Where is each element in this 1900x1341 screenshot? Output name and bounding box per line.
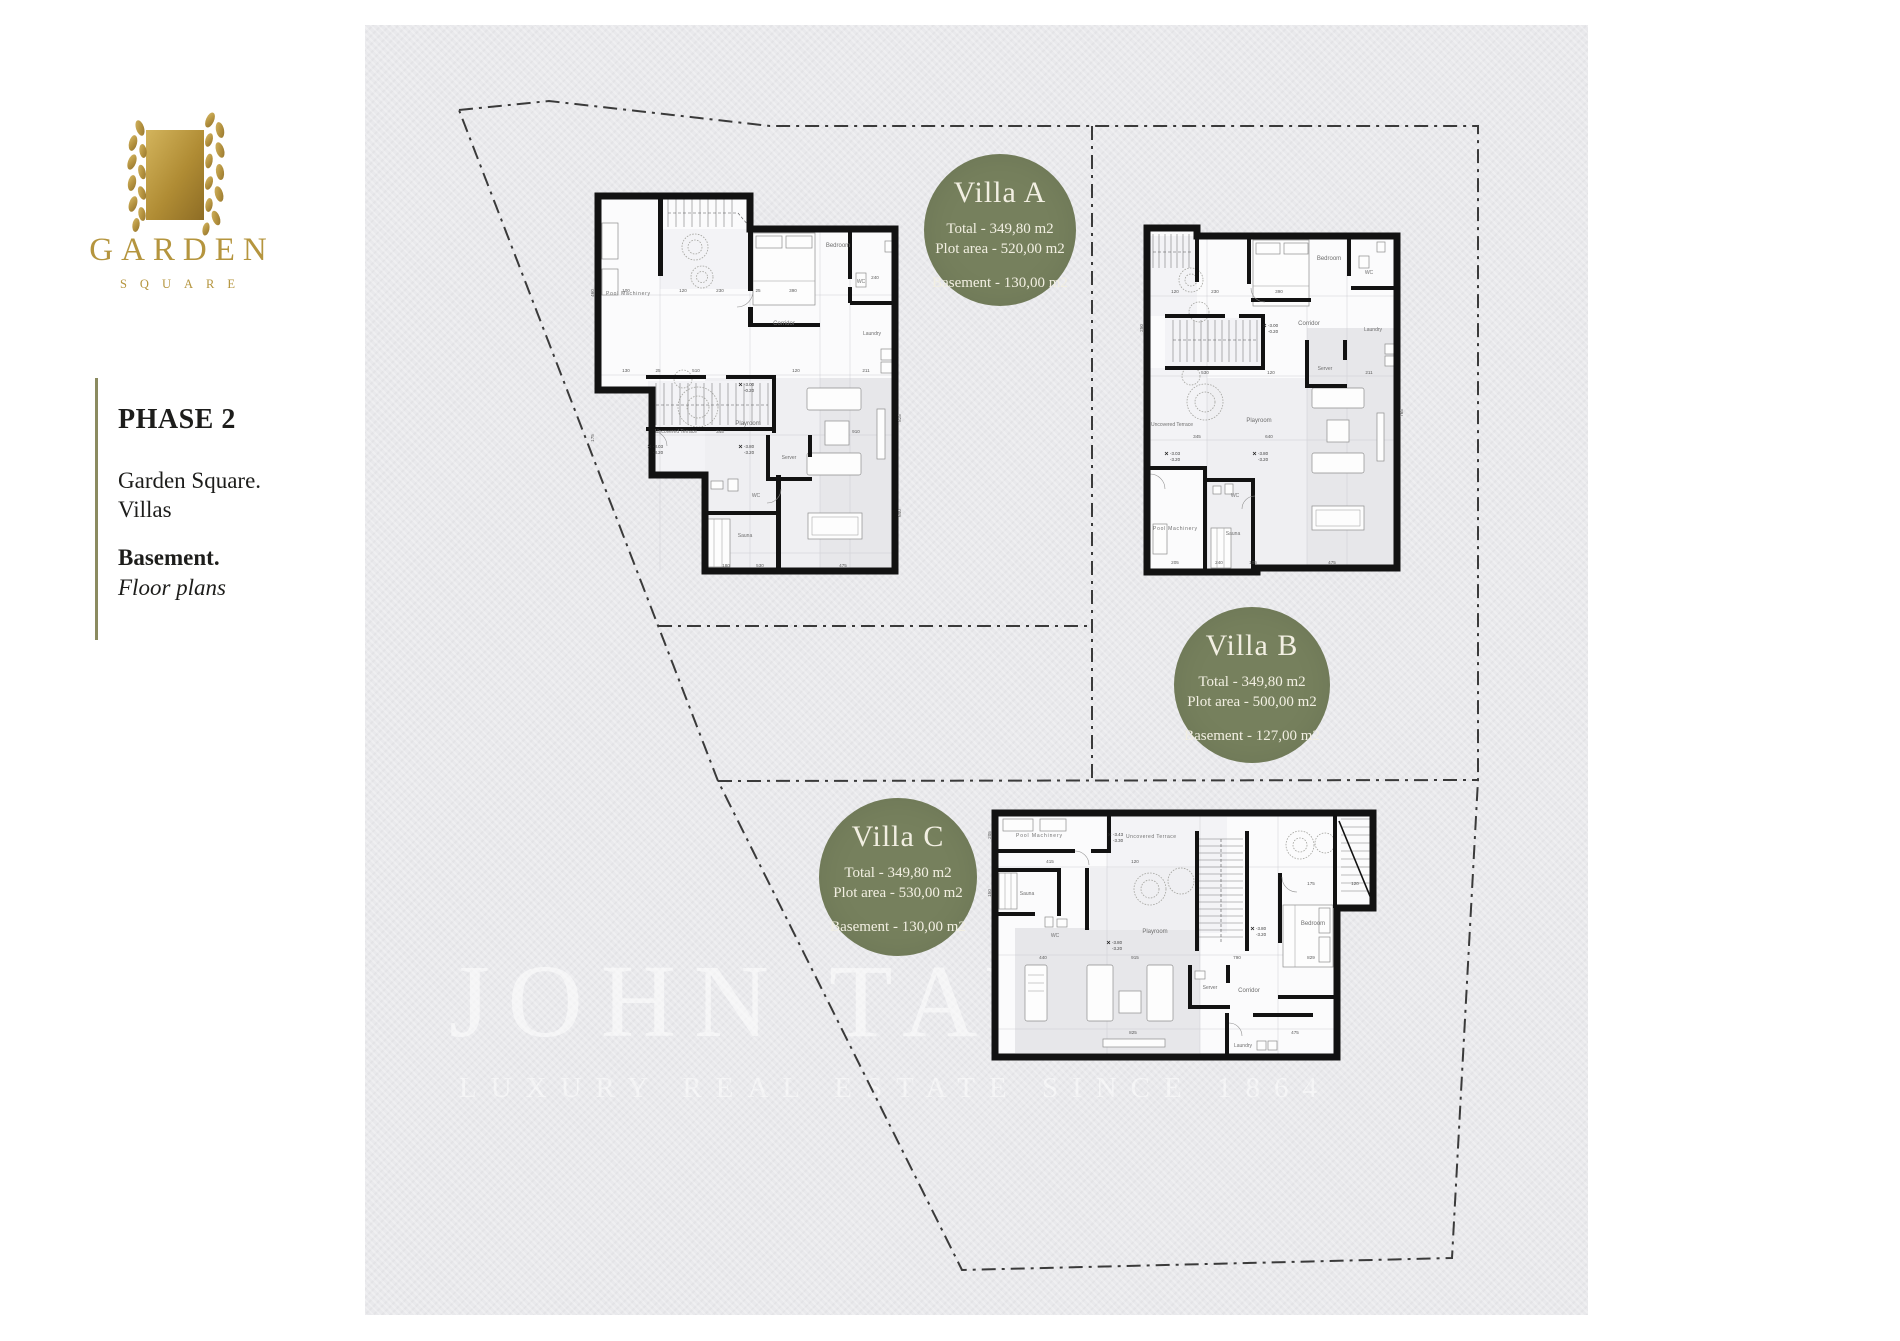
level-label: -3.20: [1112, 946, 1123, 951]
sauna-bench: [999, 873, 1017, 909]
room-label: Bedroom: [1301, 921, 1325, 927]
dimension-label: 120: [792, 368, 800, 373]
dimension-label: 205: [987, 831, 992, 839]
sauna-bench: [708, 519, 730, 567]
bed: [1253, 240, 1309, 306]
room-label: Playroom: [735, 421, 760, 427]
room-label: Pool Machinery: [1153, 526, 1198, 532]
level-label: -0.20: [1268, 329, 1279, 334]
dimension-label: 25: [755, 288, 761, 293]
level-label: -3.20: [744, 450, 755, 455]
villa-a-badge: Villa A Total - 349,80 m2 Plot area - 52…: [924, 154, 1076, 306]
room-label: Corridor: [1298, 321, 1320, 327]
dimension-label: 240: [871, 275, 879, 280]
room-label: Pool Machinery: [1016, 833, 1063, 839]
garden-square-logo: GARDEN SQUARE: [88, 88, 283, 303]
level-label: -3.30: [1113, 838, 1124, 843]
room-label: Server: [1318, 366, 1333, 372]
dimension-label: 825: [897, 414, 902, 422]
level-label: -3.80: [1256, 926, 1267, 931]
dimension-label: 910: [852, 429, 860, 434]
level-label: -3.03: [653, 444, 664, 449]
section-title: Basement.: [118, 545, 220, 571]
room-label: Laundry: [1364, 327, 1383, 333]
villa-c-total: Total - 349,80 m2: [819, 864, 977, 884]
section-subtitle: Floor plans: [118, 575, 226, 601]
project-name-line2: Villas: [118, 497, 172, 523]
room-label: Uncovered Terrace: [1151, 422, 1193, 428]
dimension-label: 120: [1351, 881, 1359, 886]
room-label: Server: [782, 455, 797, 461]
dimension-label: 120: [1171, 289, 1179, 294]
dimension-label: 640: [1265, 434, 1273, 439]
level-label: -3.00: [1268, 323, 1279, 328]
dimension-label: 100: [622, 288, 630, 293]
level-label: -0.20: [744, 388, 755, 393]
villa-c-plot-area: Plot area - 530,00 m2: [819, 884, 977, 904]
dimension-label: 25: [655, 368, 661, 373]
phase-title: PHASE 2: [118, 404, 236, 436]
dimension-label: 120: [1267, 370, 1275, 375]
dimension-label: 390: [1275, 289, 1283, 294]
dimension-label: 825: [1129, 1030, 1137, 1035]
villa-b-badge: Villa B Total - 349,80 m2 Plot area - 50…: [1174, 607, 1330, 763]
pool-table: [808, 513, 862, 539]
room-label: Corridor: [1238, 988, 1260, 994]
dimension-label: 105: [1249, 560, 1257, 565]
project-name: Garden Square.: [118, 468, 261, 494]
room-label: Bedroom: [1317, 256, 1341, 262]
room-label: Uncovered Terrace: [1126, 834, 1176, 840]
dimension-label: 510: [692, 368, 700, 373]
room-label: Sauna: [1020, 891, 1035, 897]
villa-b-badge-title: Villa B: [1174, 629, 1330, 663]
level-label: -3.00: [744, 382, 755, 387]
pool-table: [1312, 506, 1364, 530]
room-label: Playroom: [1246, 418, 1271, 424]
dimension-label: 440: [1039, 955, 1047, 960]
dimension-label: 475: [839, 563, 847, 568]
sidebar-accent-line: [95, 378, 98, 640]
room-label: WC: [752, 493, 761, 499]
level-label: -3.20: [653, 450, 664, 455]
villa-b-total: Total - 349,80 m2: [1174, 673, 1330, 693]
room-label: Corridor: [773, 321, 795, 327]
dimension-label: 175: [1307, 881, 1315, 886]
room-label: Playroom: [1142, 929, 1167, 935]
dimension-label: 211: [1365, 370, 1373, 375]
villa-c-floor-plan: Pool Machinery Uncovered Terrace Sauna W…: [985, 803, 1390, 1068]
dimension-label: 765: [1399, 409, 1404, 417]
level-label: -3.03: [1170, 451, 1181, 456]
level-label: -3.80: [1258, 451, 1269, 456]
level-label: -3.20: [1258, 457, 1269, 462]
villa-a-floor-plan: Pool Machinery Bedroom WC Corridor Laund…: [588, 173, 915, 595]
dimension-label: 345: [716, 429, 724, 434]
villa-a-badge-title: Villa A: [924, 176, 1076, 210]
room-label: Sauna: [1226, 531, 1241, 537]
dimension-label: 205: [1171, 560, 1179, 565]
dimension-label: 120: [1131, 859, 1139, 864]
dimension-label: 790: [1233, 955, 1241, 960]
dimension-label: 475: [1328, 560, 1336, 565]
dimension-label: 250: [1139, 324, 1144, 332]
level-label: -3.80: [1112, 940, 1123, 945]
room-label: WC: [1231, 493, 1240, 499]
room-label: Laundry: [863, 331, 882, 337]
level-label: -3.80: [744, 444, 755, 449]
level-label: -3.43: [1113, 832, 1124, 837]
dimension-label: 180: [722, 563, 730, 568]
dimension-label: 230: [716, 288, 724, 293]
logo-mark-icon: [126, 111, 227, 236]
logo-wordmark: GARDEN: [89, 232, 275, 268]
dimension-label: 460: [590, 289, 595, 297]
dimension-label: 150: [987, 889, 992, 897]
logo-subword: SQUARE: [120, 277, 248, 291]
villa-b-floor-plan: Bedroom WC Corridor Laundry Server Playr…: [1137, 218, 1407, 582]
dimension-label: 829: [1307, 955, 1315, 960]
dimension-label: 211: [862, 368, 870, 373]
room-label: Sauna: [738, 533, 753, 539]
room-label: WC: [857, 279, 866, 285]
villa-c-badge: Villa C Total - 349,80 m2 Plot area - 53…: [819, 798, 977, 956]
room-label: Bedroom: [826, 243, 850, 249]
villa-a-basement-area: Basement - 130,00 m2: [924, 274, 1076, 294]
room-label: WC: [1051, 933, 1060, 939]
villa-a-plot-area: Plot area - 520,00 m2: [924, 240, 1076, 260]
villa-c-basement-area: Basement - 130,00 m2: [819, 918, 977, 938]
dimension-label: 415: [1046, 859, 1054, 864]
villa-c-badge-title: Villa C: [819, 820, 977, 854]
dimension-label: 530: [756, 563, 764, 568]
dimension-label: 915: [1131, 955, 1139, 960]
villa-a-total: Total - 349,80 m2: [924, 220, 1076, 240]
brochure-page: GARDEN SQUARE PHASE 2 Garden Square. Vil…: [0, 0, 1900, 1341]
level-label: -3.20: [1170, 457, 1181, 462]
dimension-label: 120: [679, 288, 687, 293]
room-label: Laundry: [1234, 1043, 1253, 1049]
room-label: Server: [1203, 985, 1218, 991]
dimension-label: 530: [1201, 370, 1209, 375]
room-label: Uncovered Terrace: [655, 429, 697, 435]
dimension-label: 345: [1193, 434, 1201, 439]
dimension-label: 175: [590, 434, 595, 442]
dimension-label: 640: [897, 509, 902, 517]
room-label: WC: [1365, 270, 1374, 276]
bed: [753, 233, 815, 305]
dimension-label: 390: [789, 288, 797, 293]
level-label: -3.20: [1256, 932, 1267, 937]
dimension-label: 475: [1291, 1030, 1299, 1035]
dimension-label: 240: [1215, 560, 1223, 565]
villa-b-plot-area: Plot area - 500,00 m2: [1174, 693, 1330, 713]
villa-b-basement-area: Basement - 127,00 m2: [1174, 727, 1330, 747]
dimension-label: 130: [622, 368, 630, 373]
dimension-label: 230: [1211, 289, 1219, 294]
